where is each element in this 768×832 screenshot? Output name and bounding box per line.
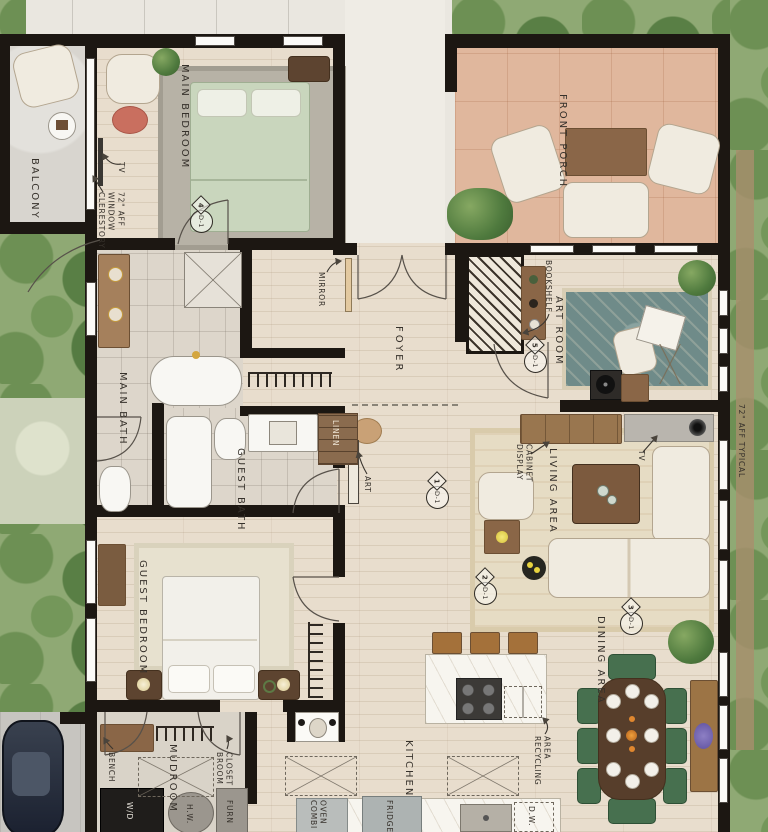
faucet-gold (192, 351, 200, 359)
furnace-note: FURN (224, 800, 234, 824)
dining-chair (608, 798, 656, 824)
vinyl-record (596, 375, 615, 394)
dining-area-label: DINING AREA (594, 616, 607, 704)
mudroom-bench (100, 724, 154, 752)
main-bath-vanity (98, 254, 130, 348)
art-room-window (719, 366, 728, 392)
dining-window (719, 652, 728, 697)
pillow (251, 89, 301, 117)
dining-window (719, 758, 728, 803)
dining-chair (663, 728, 687, 764)
porch-window (530, 245, 574, 253)
wall (0, 222, 97, 234)
shower (184, 252, 242, 308)
bar-stool (470, 632, 500, 654)
decor (607, 495, 617, 505)
pillow (197, 89, 247, 117)
tv-main-bedroom (98, 138, 103, 186)
hot-water-note: H.W. (184, 804, 194, 824)
plate (606, 762, 621, 777)
wall (333, 243, 357, 255)
decor-green (263, 680, 276, 693)
trees-top-right (452, 0, 768, 36)
basin (309, 718, 327, 738)
bedroom-plant (152, 48, 180, 76)
guest-bedroom-window (86, 540, 96, 604)
mirror-note: MIRROR (316, 272, 326, 307)
guest-bedroom-window (86, 618, 96, 682)
plate (644, 762, 659, 777)
living-window (719, 500, 728, 550)
mudroom-label: MUDROOM (166, 744, 179, 813)
guest-tub (166, 416, 212, 508)
dining-chair (663, 768, 687, 804)
table-lamp (496, 531, 508, 543)
bedroom-window (283, 36, 323, 46)
fridge-note: FRIDGE (384, 800, 394, 832)
guest-bedroom-label: GUEST BEDROOM (136, 560, 149, 675)
living-window (719, 560, 728, 610)
pendant-light (329, 719, 336, 726)
living-window (719, 440, 728, 490)
porch-window (592, 245, 636, 253)
pillow (213, 665, 255, 693)
main-tub (150, 356, 242, 406)
kitchen-sink (460, 804, 512, 832)
duvet-fold (191, 179, 307, 181)
window-bench (98, 544, 126, 606)
dishwasher-note: D.W. (526, 806, 536, 826)
candle (629, 746, 635, 752)
door-tag: 2 D-1 (474, 570, 497, 605)
wall (240, 348, 345, 358)
dining-chair (663, 688, 687, 724)
nightstand (288, 56, 330, 82)
aff-note: 72" AFF TYPICAL (736, 404, 746, 478)
foyer-coat-closet-hangers (248, 372, 332, 387)
plate (625, 774, 640, 789)
floor-plan: BALCONY MAIN BEDROOM FRONT PORCH FOYER A… (0, 0, 768, 832)
flower-vase-purple (694, 723, 713, 749)
car-windshield (12, 752, 50, 796)
decor (597, 485, 609, 497)
duvet-fold (163, 639, 257, 641)
recycling-bins (504, 686, 542, 718)
plate (644, 694, 659, 709)
art-room-window (719, 328, 728, 354)
nightstand (258, 670, 300, 700)
trees-top-left (0, 0, 26, 36)
plate (606, 728, 621, 743)
dining-plant (668, 620, 714, 664)
porch-plant (447, 188, 513, 240)
balcony-slider-door (86, 58, 95, 210)
stool-dots (534, 567, 540, 573)
art-room-label: ART ROOM (552, 296, 565, 366)
pillow (168, 665, 210, 693)
wall (228, 238, 345, 250)
mirror (345, 258, 352, 312)
door-tag: 1 D-1 (426, 474, 449, 509)
bar-stool (508, 632, 538, 654)
display-cabinet-note: DISPLAY CABINET (514, 444, 534, 482)
bar-stool (432, 632, 462, 654)
art-room-plant (678, 260, 716, 296)
balcony-label: BALCONY (28, 158, 41, 220)
guest-bath-label: GUEST BATH (234, 448, 247, 532)
guest-vanity (248, 414, 318, 452)
tv-bedroom-note: TV (116, 162, 126, 173)
lamp (277, 678, 290, 691)
bath-window (86, 282, 96, 336)
tv-living-note: TV (636, 450, 646, 461)
wall (60, 712, 97, 724)
skylight-dashed-box (447, 756, 519, 796)
living-coffee-table (572, 464, 640, 524)
sectional-sofa (548, 538, 710, 598)
wall (0, 34, 10, 234)
wall (283, 700, 345, 712)
basin-niche (295, 712, 339, 742)
record-table (621, 374, 649, 402)
kitchen-label: KITCHEN (402, 740, 415, 797)
mudroom-closet-hangers (156, 726, 214, 741)
easel-legs (648, 344, 692, 384)
pendant-light (298, 719, 305, 726)
lamp (137, 678, 150, 691)
paint-pot (529, 299, 538, 308)
bench-note: BENCH (106, 752, 116, 782)
sink (108, 307, 123, 322)
sink (269, 421, 297, 445)
bedroom-ottoman (112, 106, 148, 134)
tray (56, 120, 68, 130)
skylight-dashed-box (285, 756, 357, 796)
porch-coffee-table (565, 128, 647, 176)
plate (644, 728, 659, 743)
art-room-window (719, 290, 728, 316)
door-tag: 5 D-1 (524, 338, 547, 373)
bookshelf-note: BOOKSHELF (543, 260, 553, 313)
cooktop (456, 678, 502, 720)
paint-pot (529, 275, 538, 284)
wall (85, 700, 220, 712)
dining-window (719, 705, 728, 750)
foyer-label: FOYER (392, 326, 405, 373)
guest-closet-hangers (308, 622, 323, 698)
combi-oven-note: COMBI OVEN (308, 800, 328, 829)
door-tag: 3 D-1 (620, 600, 643, 635)
wall (333, 34, 345, 250)
wall (445, 34, 457, 92)
clerestory-note: CLERESTORY WINDOW 72" AFF (96, 192, 125, 249)
living-side-table (484, 520, 520, 554)
main-toilet (99, 466, 131, 512)
entry-walkway (345, 0, 445, 243)
speaker (689, 419, 706, 436)
bedroom-window (195, 36, 235, 46)
wall (0, 34, 97, 46)
door-tag: 4 D-1 (190, 198, 213, 233)
grass-patch-left (0, 398, 85, 524)
linen-label: LINEN (330, 420, 340, 446)
centerpiece (626, 730, 637, 741)
main-bath-label: MAIN BATH (116, 372, 129, 446)
paint-pot (529, 319, 540, 330)
front-porch-label: FRONT PORCH (556, 94, 569, 188)
broom-closet-note: BROOM CLOSET (214, 752, 234, 786)
living-stool (522, 556, 546, 580)
art-note: ART (362, 476, 372, 493)
main-bedroom-label: MAIN BEDROOM (178, 64, 191, 169)
bookshelf (466, 254, 524, 354)
stool-dots (527, 562, 533, 568)
candle (629, 716, 635, 722)
sectional-chaise (652, 446, 710, 542)
display-cabinet (520, 414, 622, 444)
balcony-side-table (48, 112, 76, 140)
living-area-label: LIVING AREA (546, 448, 559, 534)
car (2, 720, 64, 832)
wall (333, 513, 345, 577)
washer-dryer-note: W/D (124, 802, 134, 820)
porch-window (654, 245, 698, 253)
ceiling-break-dashed (352, 404, 458, 406)
turntable (590, 370, 622, 400)
tv-console (624, 414, 714, 442)
plate (625, 684, 640, 699)
dining-chair (608, 654, 656, 680)
sink (108, 267, 123, 282)
wall (287, 712, 295, 742)
wall (445, 34, 730, 48)
porch-sofa (563, 182, 649, 238)
wall (152, 403, 164, 515)
bed-guest (162, 576, 260, 700)
faucet (483, 815, 489, 821)
plate (606, 694, 621, 709)
recycling-area-note: RECYCLING AREA (532, 736, 552, 785)
dining-sideboard (690, 680, 718, 792)
